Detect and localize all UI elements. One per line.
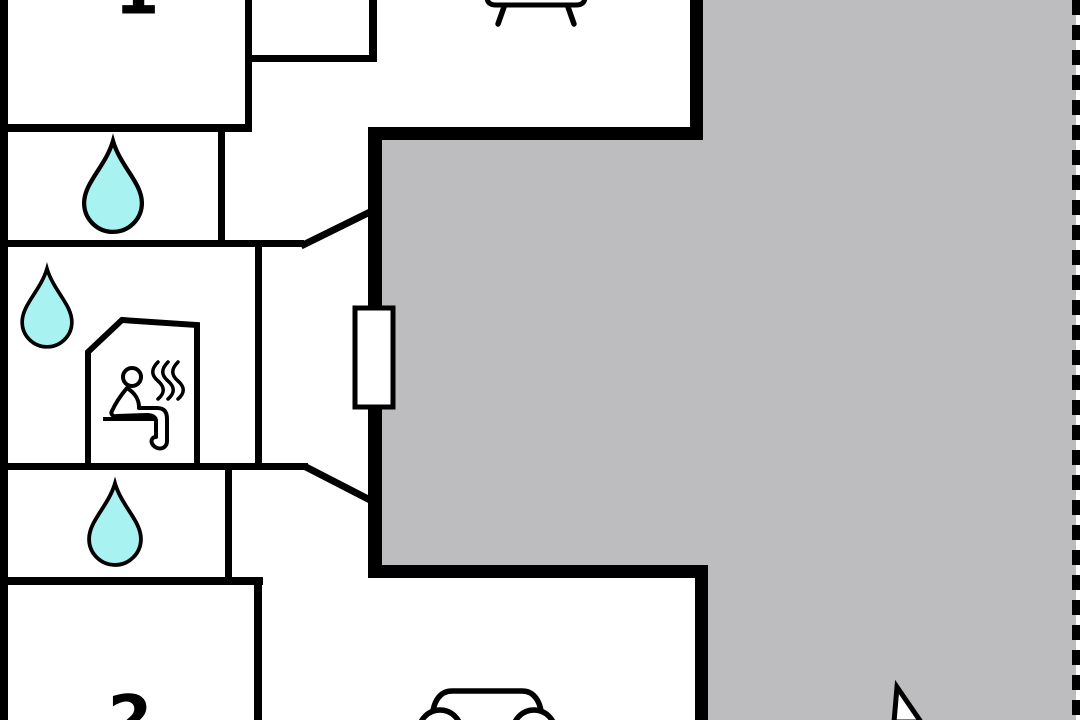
wall-entry-closet-bottom	[249, 55, 377, 62]
wall-sauna-room-right	[255, 247, 262, 467]
terrace-door-window	[355, 308, 393, 407]
wall-shower2-top	[0, 463, 308, 470]
floor-plan-svg: 1 2	[0, 0, 1080, 720]
bedroom2-label: 2	[108, 683, 153, 720]
wall-entry-closet-right	[369, 0, 377, 58]
terrace-wall-bottom	[368, 565, 708, 578]
wall-shower2-right	[225, 470, 232, 578]
living-room-wall-right	[690, 0, 703, 140]
terrace-wall-top	[368, 127, 702, 140]
wall-bedroom2-top	[0, 577, 263, 585]
floor-plan-page: 1 2	[0, 0, 1080, 720]
wall-bedroom1-bottom	[0, 124, 252, 132]
wall-shower1-right	[218, 132, 225, 244]
wall-bedroom1-right	[245, 0, 252, 132]
wall-shower1-bottom	[0, 240, 304, 247]
bedroom1-label: 1	[115, 0, 160, 30]
carport-wall-right	[695, 565, 708, 720]
exterior-wall-left	[0, 0, 8, 720]
wall-bedroom2-right	[254, 577, 262, 720]
sauna-person-head	[123, 368, 141, 386]
